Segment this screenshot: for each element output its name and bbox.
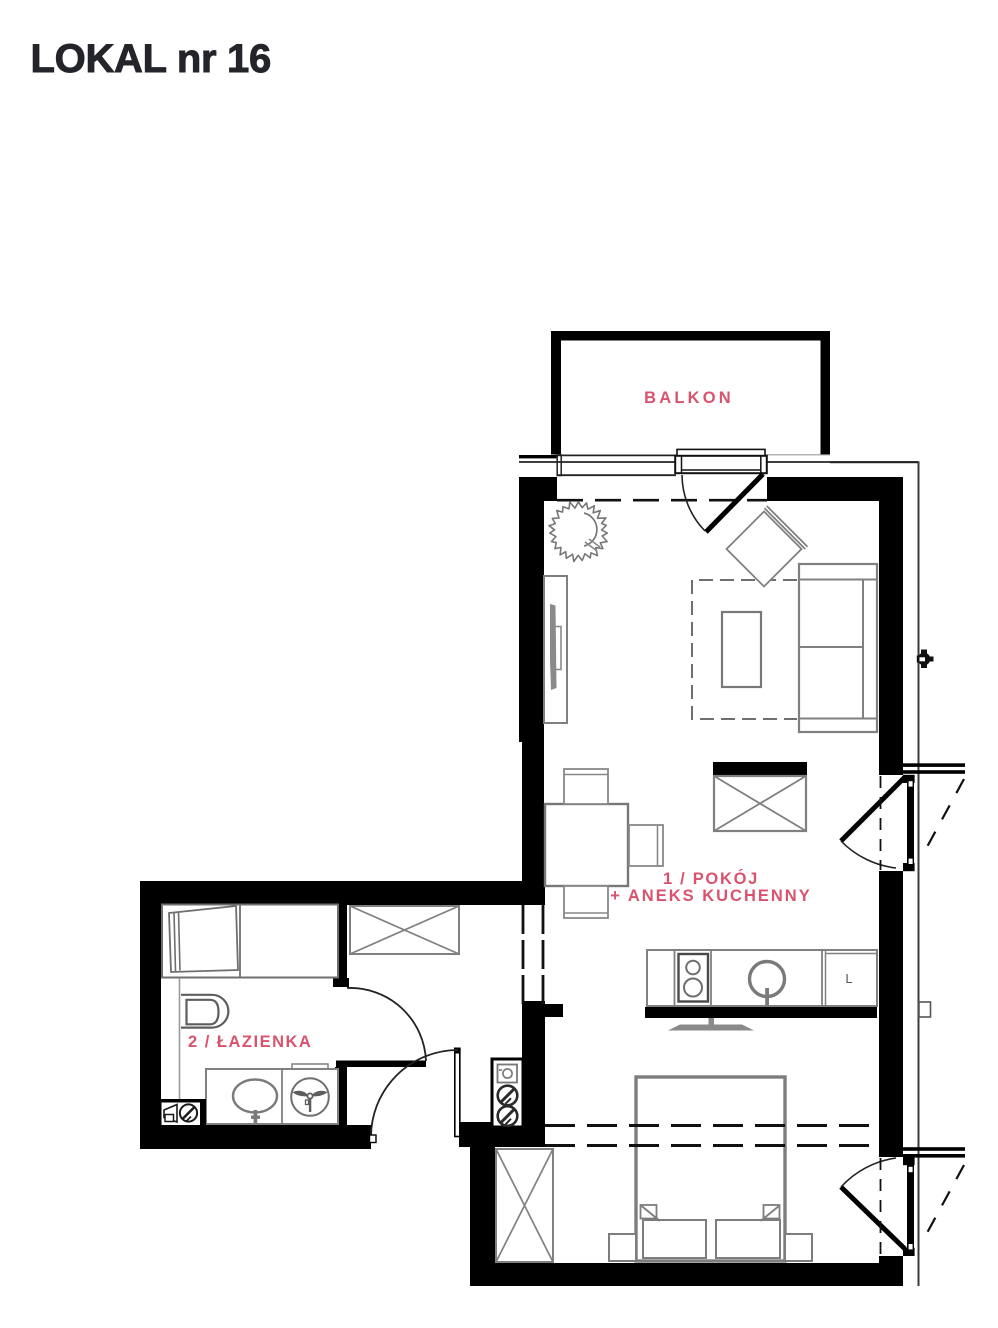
svg-text:BALKON: BALKON — [644, 389, 734, 407]
svg-text:LOKAL nr 16: LOKAL nr 16 — [31, 37, 271, 81]
svg-text:2 / ŁAZIENKA: 2 / ŁAZIENKA — [188, 1033, 312, 1051]
svg-text:+ ANEKS KUCHENNY: + ANEKS KUCHENNY — [610, 887, 811, 905]
svg-text:L: L — [845, 971, 852, 986]
svg-text:1 / POKÓJ: 1 / POKÓJ — [663, 869, 759, 888]
